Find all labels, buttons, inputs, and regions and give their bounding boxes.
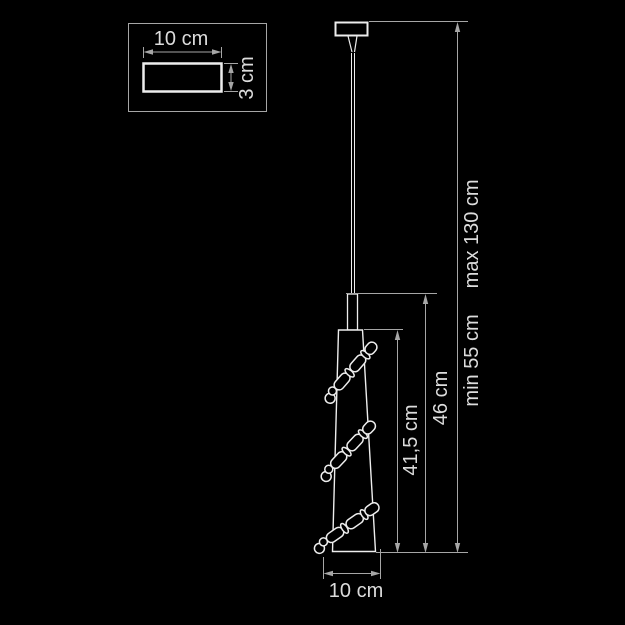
arrow-down-icon — [395, 543, 400, 553]
dimension-shade-width — [324, 549, 381, 579]
suspension-range-label: min 55 cm max 130 cm — [462, 173, 482, 413]
cable-grip — [348, 36, 357, 52]
suspension-max-label: max 130 cm — [462, 179, 482, 288]
arrow-up-icon — [395, 330, 400, 340]
arrow-down-icon — [228, 82, 233, 91]
ceiling-plate-top-view — [144, 64, 222, 92]
ceiling-canopy — [336, 23, 368, 36]
shade-width-label: 10 cm — [316, 581, 396, 601]
arrow-up-icon — [455, 22, 460, 32]
arrow-down-icon — [423, 543, 428, 553]
arrow-up-icon — [228, 64, 233, 73]
arrow-right-icon — [371, 571, 381, 576]
technical-drawing — [0, 0, 625, 625]
arrow-down-icon — [455, 543, 460, 553]
arrow-left-icon — [144, 49, 154, 54]
suspension-min-label: min 55 cm — [462, 314, 482, 406]
arrow-right-icon — [212, 49, 222, 54]
dimension-drawing-canvas: 10 cm 3 cm 41,5 cm 46 cm min 55 cm max 1… — [0, 0, 625, 625]
plate-width-label: 10 cm — [151, 29, 211, 49]
suspension-cable — [352, 53, 355, 294]
pendant-fixture — [311, 23, 382, 556]
fixture-height-label: 46 cm — [431, 356, 451, 440]
arrow-up-icon — [423, 294, 428, 304]
plate-depth-label: 3 cm — [237, 48, 257, 108]
lamp-socket — [348, 294, 358, 330]
shade-height-label: 41,5 cm — [401, 398, 421, 482]
arrow-left-icon — [324, 571, 334, 576]
